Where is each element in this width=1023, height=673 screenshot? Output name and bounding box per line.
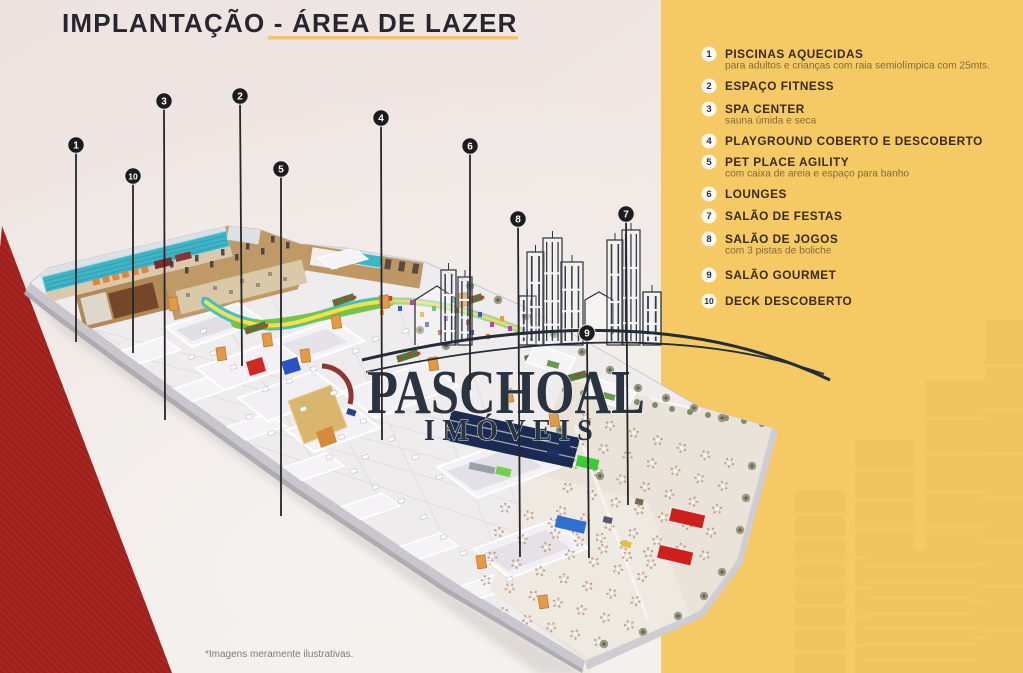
svg-text:SPA CENTER: SPA CENTER: [725, 102, 805, 116]
svg-text:1: 1: [706, 49, 712, 60]
svg-text:SALÃO DE FESTAS: SALÃO DE FESTAS: [725, 209, 842, 223]
svg-text:DECK DESCOBERTO: DECK DESCOBERTO: [725, 294, 852, 308]
svg-text:4: 4: [378, 113, 384, 124]
svg-text:LOUNGES: LOUNGES: [725, 187, 787, 201]
svg-text:7: 7: [623, 209, 629, 220]
svg-text:10: 10: [704, 296, 714, 306]
svg-text:6: 6: [706, 189, 711, 200]
svg-text:1: 1: [73, 140, 79, 151]
svg-text:ESPAÇO FITNESS: ESPAÇO FITNESS: [725, 79, 834, 93]
svg-text:PISCINAS AQUECIDAS: PISCINAS AQUECIDAS: [725, 47, 863, 61]
svg-text:8: 8: [515, 214, 521, 225]
svg-text:2: 2: [706, 81, 711, 92]
svg-text:para adultos e crianças com ra: para adultos e crianças com raia semiolí…: [725, 61, 990, 72]
svg-text:SALÃO DE JOGOS: SALÃO DE JOGOS: [725, 232, 838, 246]
svg-text:3: 3: [706, 104, 711, 115]
svg-text:IMÓVEIS: IMÓVEIS: [424, 412, 600, 447]
svg-text:3: 3: [161, 96, 167, 107]
svg-text:PLAYGROUND COBERTO E DESCOBERT: PLAYGROUND COBERTO E DESCOBERTO: [725, 134, 983, 148]
svg-text:10: 10: [128, 171, 138, 181]
svg-text:9: 9: [706, 270, 711, 281]
svg-text:com 3 pistas de boliche: com 3 pistas de boliche: [725, 246, 832, 257]
svg-text:8: 8: [706, 234, 711, 245]
svg-text:5: 5: [706, 157, 712, 168]
svg-text:com caixa de areia e espaço pa: com caixa de areia e espaço para banho: [725, 169, 909, 180]
svg-text:*Imagens meramente ilustrativa: *Imagens meramente ilustrativas.: [205, 649, 353, 660]
svg-text:SALÃO GOURMET: SALÃO GOURMET: [725, 268, 837, 282]
svg-text:IMPLANTAÇÃO - ÁREA DE LAZER: IMPLANTAÇÃO - ÁREA DE LAZER: [62, 8, 518, 38]
svg-text:6: 6: [467, 141, 473, 152]
svg-text:PET PLACE AGILITY: PET PLACE AGILITY: [725, 155, 849, 169]
svg-text:9: 9: [584, 328, 590, 339]
svg-text:7: 7: [706, 211, 711, 222]
svg-text:sauna úmida e seca: sauna úmida e seca: [725, 116, 817, 127]
svg-text:5: 5: [278, 164, 284, 175]
svg-text:4: 4: [706, 136, 712, 147]
svg-text:2: 2: [237, 91, 243, 102]
